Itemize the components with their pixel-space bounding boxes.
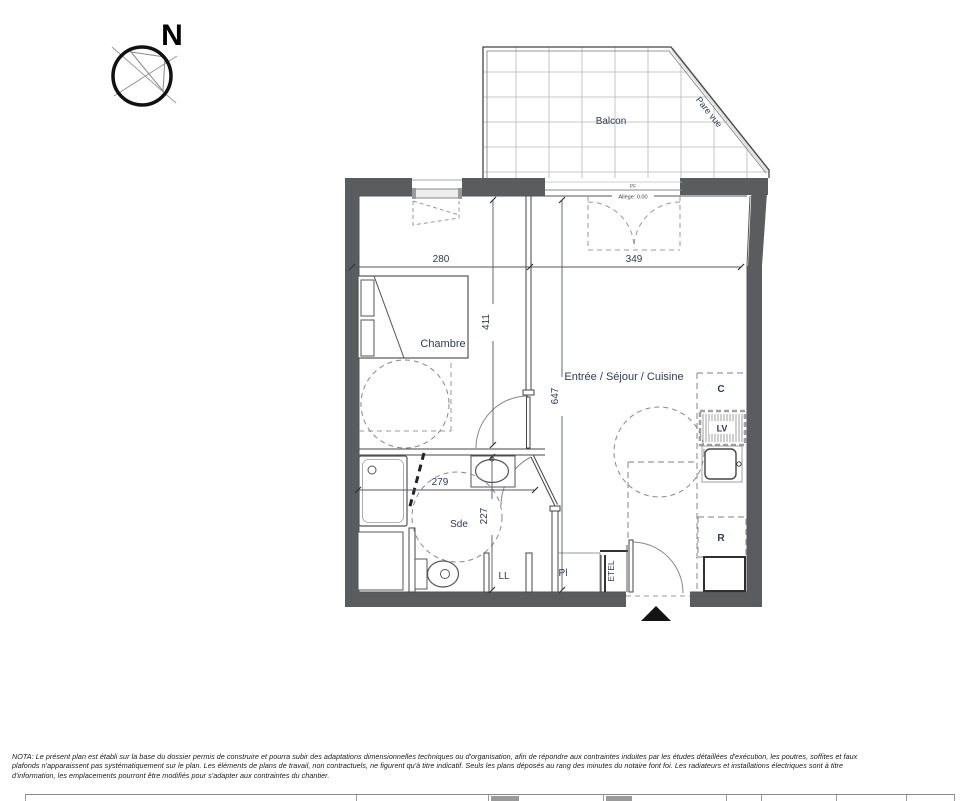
washbasin bbox=[471, 456, 515, 487]
window-tag-label: PF bbox=[630, 184, 636, 190]
bedroom-window bbox=[412, 180, 462, 225]
dimension-ticks bbox=[349, 197, 744, 593]
wc-sliding-door bbox=[409, 453, 424, 510]
title-block-logo-2 bbox=[606, 796, 632, 801]
nota-line-1: NOTA: Le présent plan est établi sur la … bbox=[12, 752, 968, 761]
room-label-living: Entrée / Séjour / Cuisine bbox=[564, 371, 683, 383]
title-block-logo-1 bbox=[491, 796, 519, 801]
dim-bedroom-length: 411 bbox=[481, 314, 492, 330]
kitchen-cabinet bbox=[704, 557, 745, 591]
electrical-box-label: ETEL bbox=[606, 560, 616, 582]
toilet bbox=[415, 559, 459, 589]
dim-shower-width: 279 bbox=[432, 477, 449, 488]
dishwasher: LV bbox=[700, 411, 745, 445]
compass-icon: N bbox=[112, 19, 183, 105]
closet-electrical-lines bbox=[558, 545, 628, 592]
bed-clearance bbox=[359, 362, 451, 431]
room-labels: Chambre Entrée / Séjour / Cuisine Sde C … bbox=[420, 338, 725, 582]
fridge-label: R bbox=[717, 533, 725, 544]
dim-living-length: 647 bbox=[550, 387, 561, 404]
kitchen-sink bbox=[702, 446, 742, 482]
balcony-door: PF Allège: 0.00 bbox=[545, 182, 682, 250]
turning-circle-bedroom bbox=[361, 360, 449, 448]
sill-height-label: Allège: 0.00 bbox=[618, 195, 647, 201]
closet-label: Pl bbox=[559, 568, 568, 579]
dim-bedroom-width: 280 bbox=[433, 254, 450, 265]
entrance-marker bbox=[641, 606, 671, 621]
room-label-bedroom: Chambre bbox=[420, 338, 465, 350]
cupboard-label: C bbox=[717, 384, 724, 395]
balcony: Balcon Pare vue bbox=[483, 47, 769, 178]
balcony-tile-grid bbox=[483, 47, 769, 178]
floor-plan: N Balcon Pare vue bbox=[0, 0, 977, 800]
nota-text: NOTA: Le présent plan est établi sur la … bbox=[12, 752, 968, 780]
dim-shower-length: 227 bbox=[479, 507, 490, 524]
washing-machine-label: LL bbox=[498, 571, 510, 582]
nota-line-2: plafonds n'apparaissent pas systématique… bbox=[12, 761, 968, 770]
bathroom-cabinet bbox=[358, 532, 403, 590]
nota-line-3: d'information, les emplacements pourront… bbox=[12, 771, 968, 780]
dim-living-width: 349 bbox=[626, 254, 643, 265]
north-label: N bbox=[161, 19, 183, 52]
entrance-door bbox=[626, 540, 690, 621]
room-label-balcony: Balcon bbox=[596, 116, 627, 127]
room-label-shower: Sde bbox=[450, 519, 468, 530]
dishwasher-label: LV bbox=[717, 424, 728, 434]
shower bbox=[359, 456, 407, 526]
